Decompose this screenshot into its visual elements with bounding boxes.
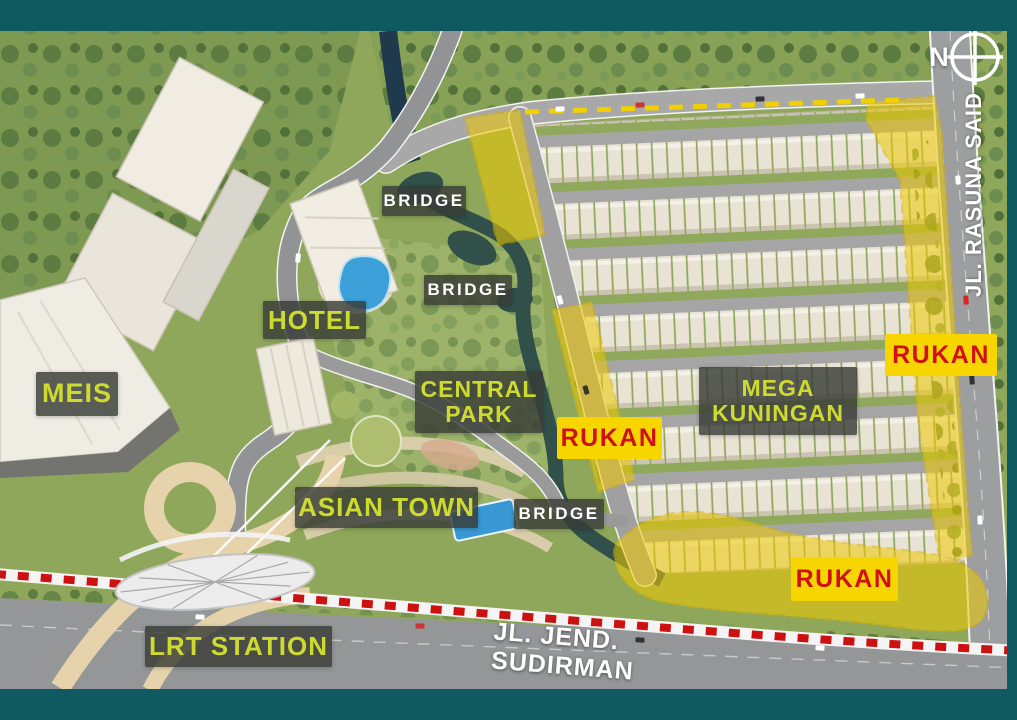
- label-hotel: HOTEL: [263, 301, 366, 339]
- label-central-park: CENTRAL PARK: [415, 371, 543, 433]
- masterplan-map: MEIS HOTEL BRIDGE BRIDGE BRIDGE CENTRAL …: [0, 0, 1017, 720]
- label-rukan-west: RUKAN: [557, 417, 662, 459]
- label-rukan-east: RUKAN: [885, 334, 997, 376]
- aerial-render: [0, 0, 1017, 720]
- label-lrt-station: LRT STATION: [145, 626, 332, 667]
- label-asian-town: ASIAN TOWN: [295, 487, 478, 528]
- label-rukan-south: RUKAN: [791, 557, 898, 601]
- compass-north-letter: N: [924, 40, 954, 74]
- label-mega-kuningan: MEGA KUNINGAN: [699, 367, 857, 435]
- road-label-rasuna-said: JL. RASUNA SAID: [956, 88, 992, 302]
- label-bridge-north: BRIDGE: [382, 186, 466, 216]
- label-meis: MEIS: [36, 372, 118, 416]
- label-bridge-south: BRIDGE: [514, 499, 604, 529]
- label-bridge-middle: BRIDGE: [424, 275, 512, 305]
